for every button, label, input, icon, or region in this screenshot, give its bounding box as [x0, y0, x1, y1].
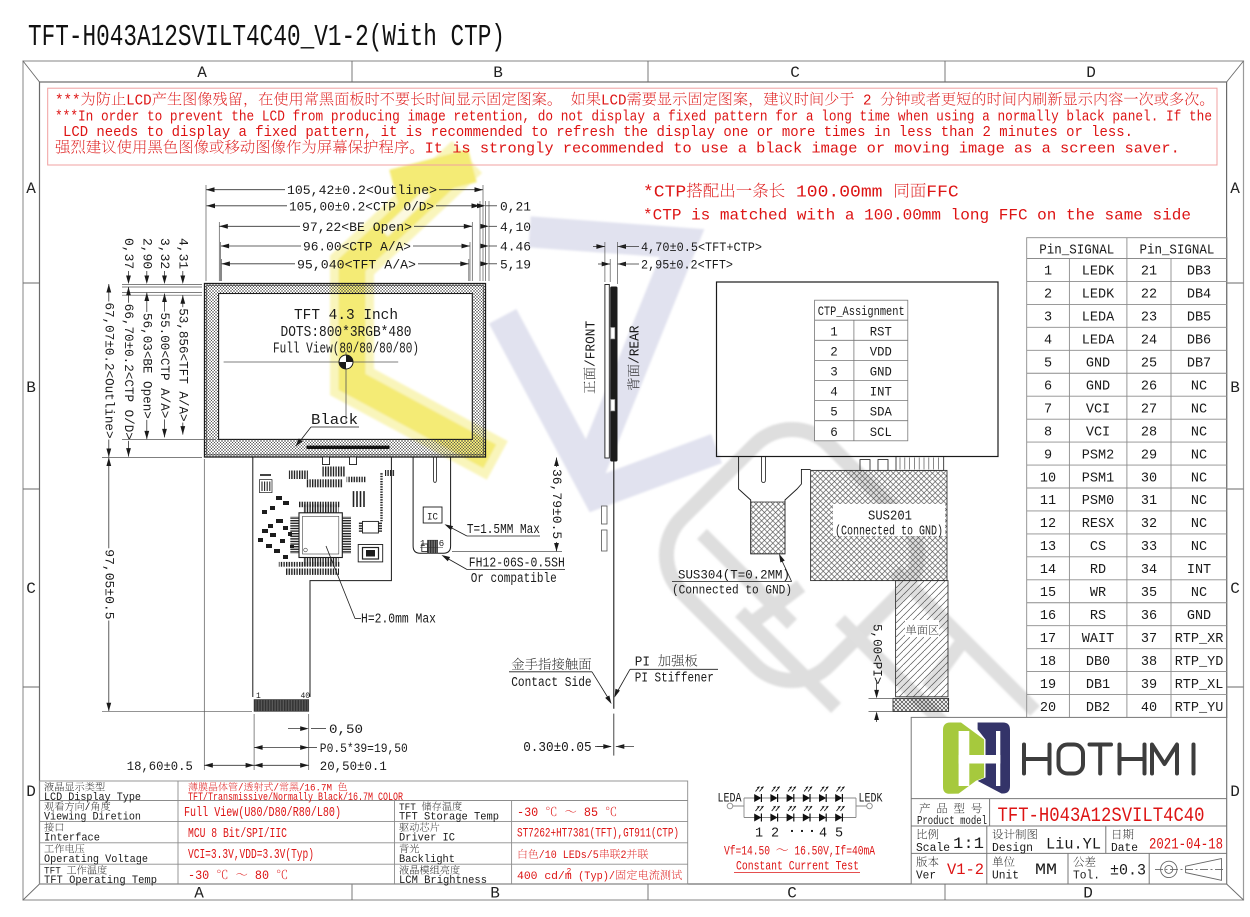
svg-text:FFC: FFC [926, 184, 959, 202]
svg-text:/FRONT: /FRONT [585, 321, 600, 367]
svg-text:12: 12 [1040, 517, 1056, 532]
svg-text:Constant Current Test: Constant Current Test [736, 859, 859, 874]
svg-text:66,70±0.2<CTP O/D>: 66,70±0.2<CTP O/D> [121, 304, 135, 440]
svg-text:105,42±0.2<Outline>: 105,42±0.2<Outline> [287, 183, 437, 198]
svg-text:TFT-H043A12SVILT4C40_V1-2(With: TFT-H043A12SVILT4C40_V1-2(With CTP) [28, 20, 505, 55]
svg-text:LCM Brightness: LCM Brightness [399, 875, 487, 887]
svg-text:SUS304(T=0.2MM): SUS304(T=0.2MM) [678, 568, 790, 583]
svg-text:B: B [490, 885, 500, 903]
svg-text:C: C [790, 64, 800, 82]
svg-text:15: 15 [1040, 586, 1056, 601]
svg-text:Backlight: Backlight [399, 854, 455, 866]
svg-text:85: 85 [577, 805, 605, 820]
svg-text:24: 24 [1141, 334, 1157, 349]
svg-text:LCD Display Type: LCD Display Type [44, 792, 141, 804]
svg-text:C: C [26, 580, 36, 598]
svg-text:37: 37 [1141, 632, 1157, 647]
svg-text:29: 29 [1141, 448, 1157, 463]
svg-text:2: 2 [1044, 288, 1052, 303]
svg-text:CTP_Assignment: CTP_Assignment [818, 305, 905, 319]
svg-text:DB4: DB4 [1187, 288, 1211, 303]
svg-text:TFT Operating Temp: TFT Operating Temp [44, 875, 157, 887]
svg-text:*CTP: *CTP [643, 184, 686, 202]
svg-text:0,50: 0,50 [329, 722, 363, 737]
svg-text:IC: IC [427, 513, 438, 524]
svg-text:53,856<TFT A/A>: 53,856<TFT A/A> [176, 308, 190, 421]
svg-text:A: A [194, 885, 204, 903]
svg-text:25: 25 [1141, 357, 1157, 372]
svg-text:NC: NC [1191, 379, 1207, 394]
svg-text:35: 35 [1141, 586, 1157, 601]
svg-text:Contact Side: Contact Side [511, 676, 591, 691]
svg-text:ST7262+HT7381(TFT),GT911(CTP): ST7262+HT7381(TFT),GT911(CTP) [517, 827, 679, 841]
svg-text:DOTS:800*3RGB*480: DOTS:800*3RGB*480 [281, 325, 412, 341]
svg-text:/10 LEDs/5: /10 LEDs/5 [539, 850, 599, 862]
svg-text:1:1: 1:1 [953, 835, 984, 853]
svg-text:INT: INT [1187, 563, 1211, 578]
svg-text:NC: NC [1191, 586, 1207, 601]
svg-text:16.50V,If=40mA: 16.50V,If=40mA [789, 844, 876, 859]
svg-text:PSM2: PSM2 [1082, 448, 1114, 463]
svg-text:Or compatible: Or compatible [471, 572, 557, 587]
svg-text:7: 7 [1044, 402, 1052, 417]
svg-text:INT: INT [870, 386, 892, 400]
svg-text:RTP_YU: RTP_YU [1175, 701, 1224, 716]
svg-text:RD: RD [1090, 563, 1106, 578]
svg-text:SUS201: SUS201 [868, 510, 912, 525]
svg-text:Driver IC: Driver IC [399, 832, 455, 844]
svg-text:0.30±0.05: 0.30±0.05 [523, 741, 591, 756]
svg-text:TFT-H043A12SVILT4C40: TFT-H043A12SVILT4C40 [998, 805, 1205, 828]
svg-text:4,31: 4,31 [176, 238, 191, 269]
svg-text:It is strongly recommended to: It is strongly recommended to use a blac… [425, 140, 1180, 158]
svg-text:97,22<BE Open>: 97,22<BE Open> [302, 220, 412, 235]
svg-text:55.00<CTP A/A>: 55.00<CTP A/A> [157, 313, 171, 419]
svg-text:5: 5 [835, 827, 843, 842]
svg-text:LCD: LCD [126, 94, 152, 110]
svg-text:DB0: DB0 [1086, 655, 1110, 670]
svg-text:***: *** [55, 94, 81, 110]
svg-text:H=2.0mm Max: H=2.0mm Max [361, 613, 436, 628]
svg-text:2: 2 [567, 868, 572, 877]
svg-text:DB3: DB3 [1187, 265, 1211, 280]
svg-text:16: 16 [1040, 609, 1056, 624]
svg-text:D: D [1086, 64, 1096, 82]
svg-text:80: 80 [248, 868, 276, 883]
svg-text:LEDA: LEDA [1082, 334, 1115, 349]
svg-text:C: C [787, 885, 797, 903]
svg-text:DB2: DB2 [1086, 701, 1110, 716]
svg-text:SCL: SCL [870, 426, 892, 440]
svg-text:LEDK: LEDK [859, 792, 883, 806]
svg-text:-30: -30 [517, 805, 545, 820]
svg-text:B: B [1230, 379, 1240, 397]
svg-text:NC: NC [1191, 517, 1207, 532]
svg-text:28: 28 [1141, 425, 1157, 440]
svg-text:0,37: 0,37 [121, 238, 136, 269]
svg-text:105,00±0.2<CTP O/D>: 105,00±0.2<CTP O/D> [289, 199, 434, 214]
svg-text:V1-2: V1-2 [947, 861, 984, 879]
svg-text:MCU 8 Bit/SPI/IIC: MCU 8 Bit/SPI/IIC [188, 826, 287, 842]
svg-text:(Connected to GND): (Connected to GND) [835, 525, 943, 540]
svg-text:6: 6 [1044, 379, 1052, 394]
svg-text:TFT 4.3 Inch: TFT 4.3 Inch [294, 308, 398, 324]
svg-text:TFT/Transmissive/Normally Blac: TFT/Transmissive/Normally Black/16.7M CO… [188, 792, 403, 804]
svg-text:Ver: Ver [916, 870, 936, 883]
svg-text:Operating Voltage: Operating Voltage [44, 854, 148, 866]
svg-text:95,040<TFT A/A>: 95,040<TFT A/A> [297, 257, 416, 272]
svg-text:WAIT: WAIT [1082, 632, 1114, 647]
svg-text:***In order to prevent the LCD: ***In order to prevent the LCD from prod… [55, 110, 1212, 126]
svg-text:39: 39 [1141, 678, 1157, 693]
svg-text:27: 27 [1141, 402, 1157, 417]
svg-text:A: A [197, 64, 207, 82]
svg-text:RTP_XR: RTP_XR [1175, 632, 1224, 647]
svg-text:PI Stiffener: PI Stiffener [635, 672, 714, 687]
svg-text:NC: NC [1191, 471, 1207, 486]
svg-text:1: 1 [755, 827, 763, 842]
svg-text:CS: CS [1090, 540, 1106, 555]
svg-text:38: 38 [1141, 655, 1157, 670]
svg-text:GND: GND [1187, 609, 1211, 624]
svg-text:D: D [1230, 783, 1240, 801]
svg-text:34: 34 [1141, 563, 1157, 578]
svg-text:19: 19 [1040, 678, 1056, 693]
svg-text:GND: GND [870, 366, 892, 380]
svg-text:VCI=3.3V,VDD=3.3V(Typ): VCI=3.3V,VDD=3.3V(Typ) [188, 847, 314, 863]
svg-text:40: 40 [1141, 701, 1157, 716]
svg-text:6: 6 [830, 426, 838, 440]
svg-text:Liu.YL: Liu.YL [1046, 836, 1101, 854]
svg-text:36,79±0.5: 36,79±0.5 [549, 469, 564, 539]
svg-text:LEDK: LEDK [1082, 265, 1115, 280]
svg-text:*CTP is matched with a 100.00m: *CTP is matched with a 100.00mm long FFC… [643, 207, 1191, 225]
svg-text:20,50±0.1: 20,50±0.1 [320, 759, 387, 774]
svg-text:13: 13 [1040, 540, 1056, 555]
svg-text:5,19: 5,19 [500, 257, 531, 272]
svg-text:···: ··· [787, 825, 817, 840]
svg-text:NC: NC [1191, 494, 1207, 509]
svg-text:SDA: SDA [870, 406, 892, 420]
svg-text:LCD: LCD [601, 94, 627, 110]
svg-text:2: 2 [621, 850, 627, 862]
svg-text:/REAR: /REAR [629, 326, 644, 365]
svg-text:LEDA: LEDA [718, 792, 742, 806]
svg-text:D: D [26, 783, 36, 801]
svg-text:3,32: 3,32 [157, 238, 172, 269]
svg-text:TFT Storage Temp: TFT Storage Temp [399, 812, 499, 824]
svg-text:VDD: VDD [870, 345, 892, 359]
svg-text:RTP_XL: RTP_XL [1175, 678, 1224, 693]
svg-text:2: 2 [830, 345, 838, 359]
svg-text:22: 22 [1141, 288, 1157, 303]
svg-text:WR: WR [1090, 586, 1106, 601]
svg-text:NC: NC [1191, 425, 1207, 440]
svg-text:26: 26 [1141, 379, 1157, 394]
svg-text:2021-04-18: 2021-04-18 [1149, 836, 1223, 854]
svg-text:32: 32 [1141, 517, 1157, 532]
svg-text:11: 11 [1040, 494, 1056, 509]
svg-text:18,60±0.5: 18,60±0.5 [127, 759, 193, 774]
svg-text:PSM0: PSM0 [1082, 494, 1114, 509]
svg-text:56,03<BE Open>: 56,03<BE Open> [140, 313, 154, 419]
svg-text:17: 17 [1040, 632, 1056, 647]
svg-text:4: 4 [1044, 334, 1052, 349]
svg-text:PSM1: PSM1 [1082, 471, 1114, 486]
svg-text:36: 36 [1141, 609, 1157, 624]
svg-text:2: 2 [855, 94, 881, 110]
svg-text:NC: NC [1191, 402, 1207, 417]
svg-text:-30: -30 [188, 868, 216, 883]
svg-text:21: 21 [1141, 265, 1157, 280]
svg-text:33: 33 [1141, 540, 1157, 555]
svg-text:5: 5 [830, 406, 838, 420]
svg-text:97,05±0.5: 97,05±0.5 [102, 549, 117, 619]
svg-text:(Typ)/: (Typ)/ [572, 871, 615, 883]
svg-text:10: 10 [1040, 471, 1056, 486]
svg-text:1: 1 [1044, 265, 1052, 280]
svg-text:Interface: Interface [44, 832, 100, 844]
svg-text:Scale: Scale [916, 842, 950, 855]
svg-text:NC: NC [1191, 540, 1207, 555]
svg-text:4: 4 [819, 827, 827, 842]
svg-text:RS: RS [1090, 609, 1106, 624]
svg-text:Design: Design [992, 842, 1033, 855]
svg-text:Tol.: Tol. [1073, 870, 1100, 883]
svg-text:2,90: 2,90 [140, 238, 155, 269]
svg-text:VCI: VCI [1086, 425, 1110, 440]
svg-text:GND: GND [1086, 379, 1110, 394]
svg-text:Vf=14.50: Vf=14.50 [724, 844, 776, 859]
svg-text:RESX: RESX [1082, 517, 1114, 532]
svg-text:P0.5*39=19,50: P0.5*39=19,50 [320, 741, 408, 756]
svg-text:B: B [26, 379, 36, 397]
svg-text:40: 40 [301, 692, 311, 701]
svg-text:2: 2 [771, 827, 779, 842]
svg-text:14: 14 [1040, 563, 1056, 578]
svg-text:DB7: DB7 [1187, 357, 1211, 372]
svg-text:D: D [1083, 885, 1093, 903]
svg-text:A: A [1230, 180, 1240, 198]
svg-text:MM: MM [1035, 861, 1057, 879]
svg-text:GND: GND [1086, 357, 1110, 372]
svg-text:23: 23 [1141, 311, 1157, 326]
svg-text:Date: Date [1111, 842, 1138, 855]
svg-text:4: 4 [830, 386, 838, 400]
svg-text:DB5: DB5 [1187, 311, 1211, 326]
svg-text:VCI: VCI [1086, 402, 1110, 417]
svg-text:1: 1 [256, 692, 261, 701]
svg-text:RTP_YD: RTP_YD [1175, 655, 1224, 670]
svg-text:Product model: Product model [917, 815, 987, 828]
svg-text:Full View(U80/D80/R80/L80): Full View(U80/D80/R80/L80) [184, 805, 341, 821]
svg-text:LEDA: LEDA [1082, 311, 1115, 326]
svg-text:Pin_SIGNAL: Pin_SIGNAL [1039, 244, 1114, 259]
svg-text:30: 30 [1141, 471, 1157, 486]
svg-text:PI: PI [635, 656, 658, 671]
svg-text:Viewing Diretion: Viewing Diretion [44, 812, 141, 824]
svg-text:400 cd/m: 400 cd/m [517, 871, 572, 883]
svg-text:8: 8 [1044, 425, 1052, 440]
svg-text:(Connected to GND): (Connected to GND) [672, 583, 792, 598]
svg-text:0,21: 0,21 [500, 199, 531, 214]
svg-text:9: 9 [1044, 448, 1052, 463]
svg-text:±0.3: ±0.3 [1110, 862, 1146, 880]
svg-text:B: B [493, 64, 503, 82]
svg-text:DB1: DB1 [1086, 678, 1110, 693]
svg-text:Unit: Unit [992, 870, 1019, 883]
svg-text:4.46: 4.46 [500, 240, 531, 255]
svg-text:3: 3 [1044, 311, 1052, 326]
svg-text:4,70±0.5<TFT+CTP>: 4,70±0.5<TFT+CTP> [641, 240, 762, 255]
svg-text:1: 1 [830, 325, 838, 339]
svg-text:18: 18 [1040, 655, 1056, 670]
svg-text:NC: NC [1191, 448, 1207, 463]
svg-text:5,00<PI>: 5,00<PI> [869, 624, 883, 685]
svg-text:96.00<CTP A/A>: 96.00<CTP A/A> [303, 240, 411, 255]
svg-text:DB6: DB6 [1187, 334, 1211, 349]
svg-text:3: 3 [830, 366, 838, 380]
svg-text:5: 5 [1044, 357, 1052, 372]
svg-text:LEDK: LEDK [1082, 288, 1115, 303]
svg-text:67,07±0.2<Outline>: 67,07±0.2<Outline> [102, 302, 116, 438]
svg-text:31: 31 [1141, 494, 1157, 509]
svg-text:4,10: 4,10 [500, 220, 531, 235]
svg-text:Pin_SIGNAL: Pin_SIGNAL [1139, 244, 1214, 259]
svg-text:20: 20 [1040, 701, 1056, 716]
svg-text:2,95±0.2<TFT>: 2,95±0.2<TFT> [641, 258, 733, 273]
svg-text:C: C [1230, 580, 1240, 598]
svg-text:100.00mm: 100.00mm [785, 184, 893, 202]
svg-text:A: A [26, 180, 36, 198]
svg-text:RST: RST [870, 325, 892, 339]
